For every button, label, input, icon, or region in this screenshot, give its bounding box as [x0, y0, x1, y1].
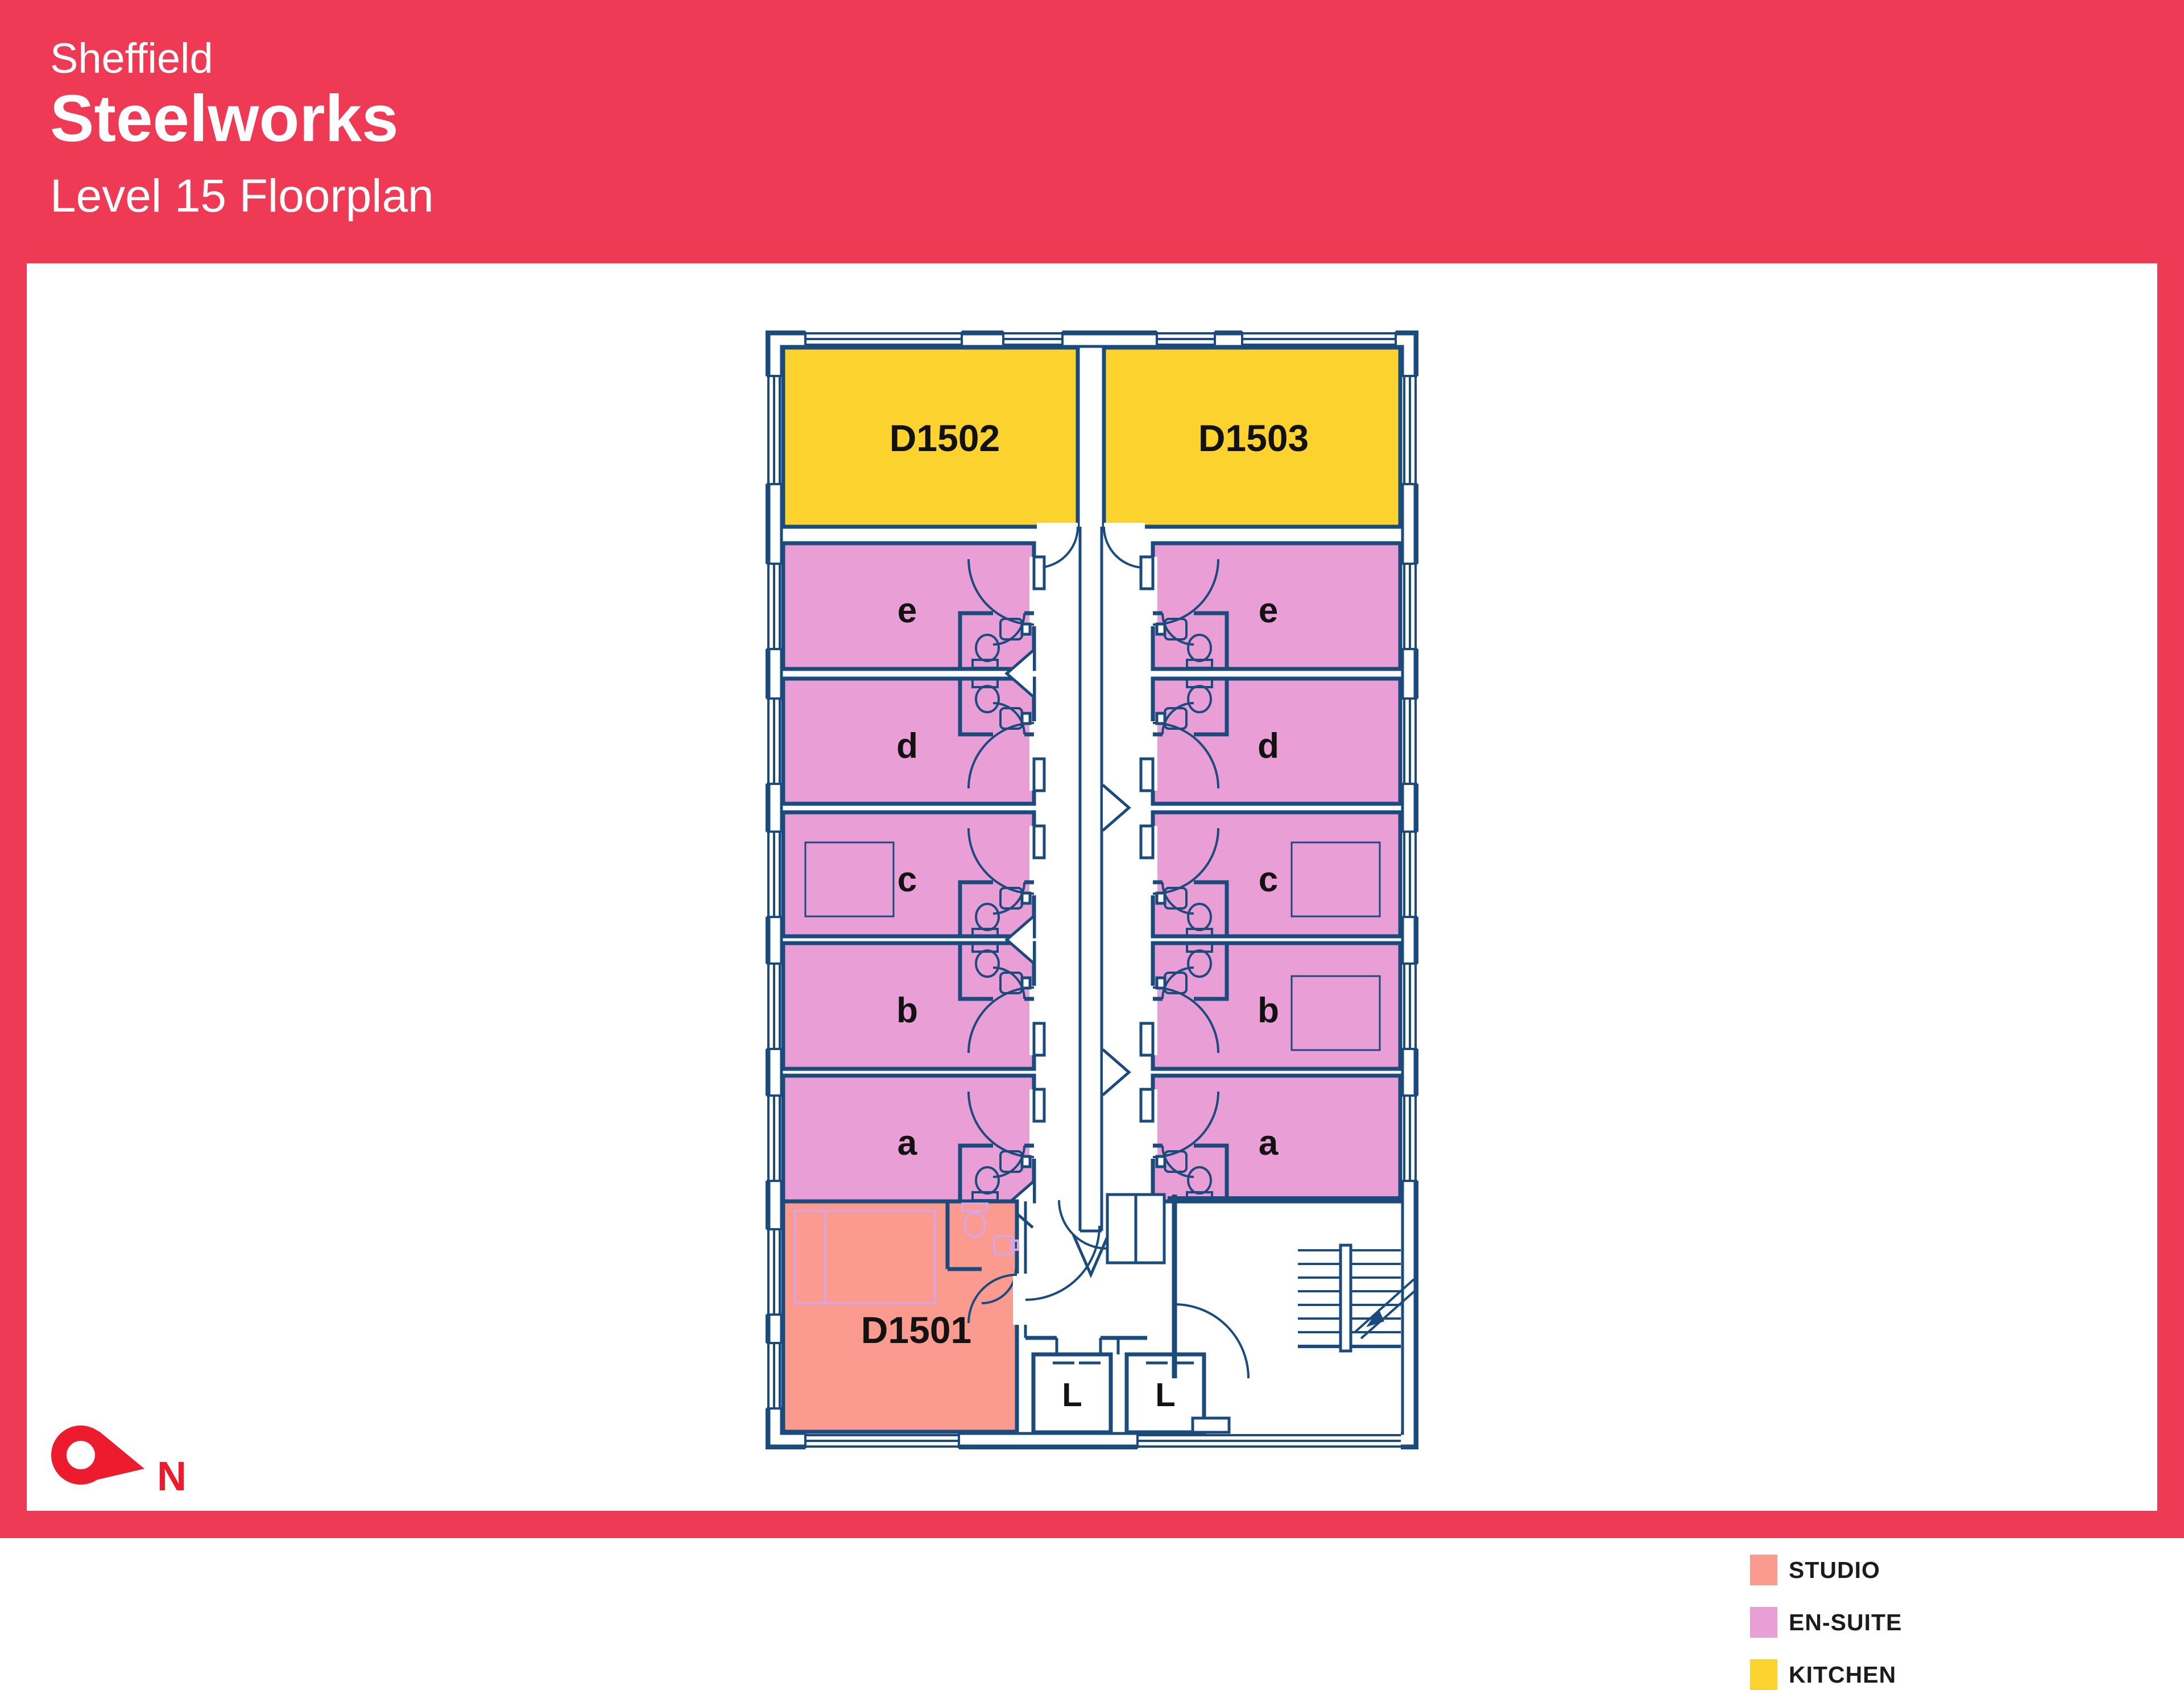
riser-closets [1059, 1195, 1164, 1263]
label-right-c: c [1259, 860, 1278, 899]
label-right-e: e [1259, 591, 1278, 630]
label-left-a: a [897, 1123, 917, 1163]
label-lift-1: L [1062, 1377, 1082, 1414]
label-right-d: d [1258, 726, 1279, 766]
label-d1501: D1501 [861, 1309, 972, 1351]
label-d1503: D1503 [1198, 417, 1309, 459]
legend-item-kitchen: KITCHEN [1750, 1659, 1896, 1690]
legend-swatch-ensuite [1750, 1607, 1777, 1638]
legend-item-studio: STUDIO [1750, 1555, 1880, 1585]
legend-swatch-kitchen [1750, 1659, 1777, 1690]
legend-label-kitchen: KITCHEN [1789, 1662, 1896, 1688]
label-left-c: c [897, 860, 917, 899]
label-left-b: b [896, 991, 918, 1030]
label-right-b: b [1258, 991, 1279, 1030]
label-right-a: a [1259, 1123, 1279, 1163]
spine-wall [1080, 527, 1102, 1231]
floorplan: D1502 D1503 e d c b a e d c b a D1501 L … [766, 330, 1418, 1449]
label-left-e: e [897, 591, 917, 630]
page-frame: Sheffield Steelworks Level 15 Floorplan [0, 0, 2184, 1538]
label-left-d: d [896, 726, 918, 766]
legend-label-studio: STUDIO [1789, 1557, 1880, 1584]
label-lift-2: L [1155, 1377, 1175, 1414]
header-city: Sheffield [50, 36, 213, 81]
header-building-title: Steelworks [50, 84, 399, 154]
label-d1502: D1502 [890, 417, 1000, 459]
north-compass: N [50, 1419, 204, 1495]
legend-swatch-studio [1750, 1555, 1777, 1585]
door-arc-kitchen-right [1104, 527, 1145, 568]
legend-label-ensuite: EN-SUITE [1789, 1609, 1902, 1636]
compass-ring-hole [67, 1441, 95, 1469]
content-canvas: D1502 D1503 e d c b a e d c b a D1501 L … [27, 263, 2157, 1511]
stairs-direction-line [1354, 1279, 1415, 1338]
header-subtitle: Level 15 Floorplan [50, 172, 434, 221]
compass-north-label: N [157, 1454, 187, 1495]
legend-item-ensuite: EN-SUITE [1750, 1607, 1902, 1638]
